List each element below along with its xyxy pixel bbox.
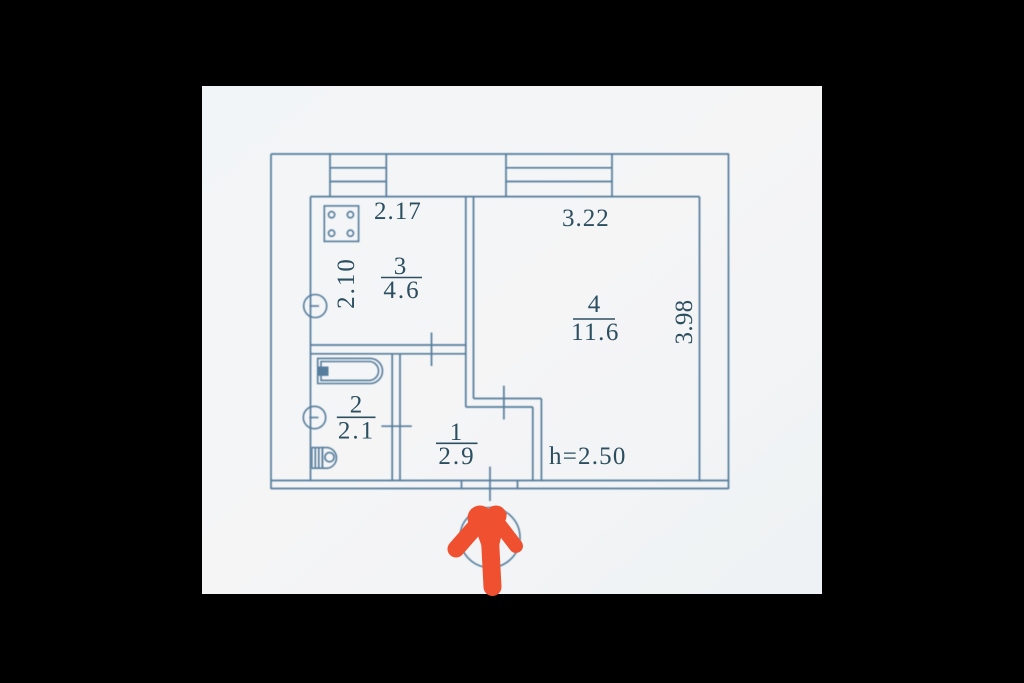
svg-text:3: 3 xyxy=(394,253,407,280)
svg-text:11.6: 11.6 xyxy=(571,319,620,346)
svg-text:h=2.50: h=2.50 xyxy=(549,443,627,470)
svg-text:2.1: 2.1 xyxy=(338,418,375,445)
svg-text:4.6: 4.6 xyxy=(383,277,420,304)
svg-text:3.98: 3.98 xyxy=(671,300,698,345)
svg-text:3.22: 3.22 xyxy=(562,205,610,232)
svg-text:2.9: 2.9 xyxy=(438,443,475,470)
svg-text:1: 1 xyxy=(450,419,463,446)
svg-text:4: 4 xyxy=(588,291,601,318)
svg-text:2.10: 2.10 xyxy=(333,257,360,309)
svg-text:2: 2 xyxy=(350,392,363,419)
svg-text:2.17: 2.17 xyxy=(374,198,422,225)
